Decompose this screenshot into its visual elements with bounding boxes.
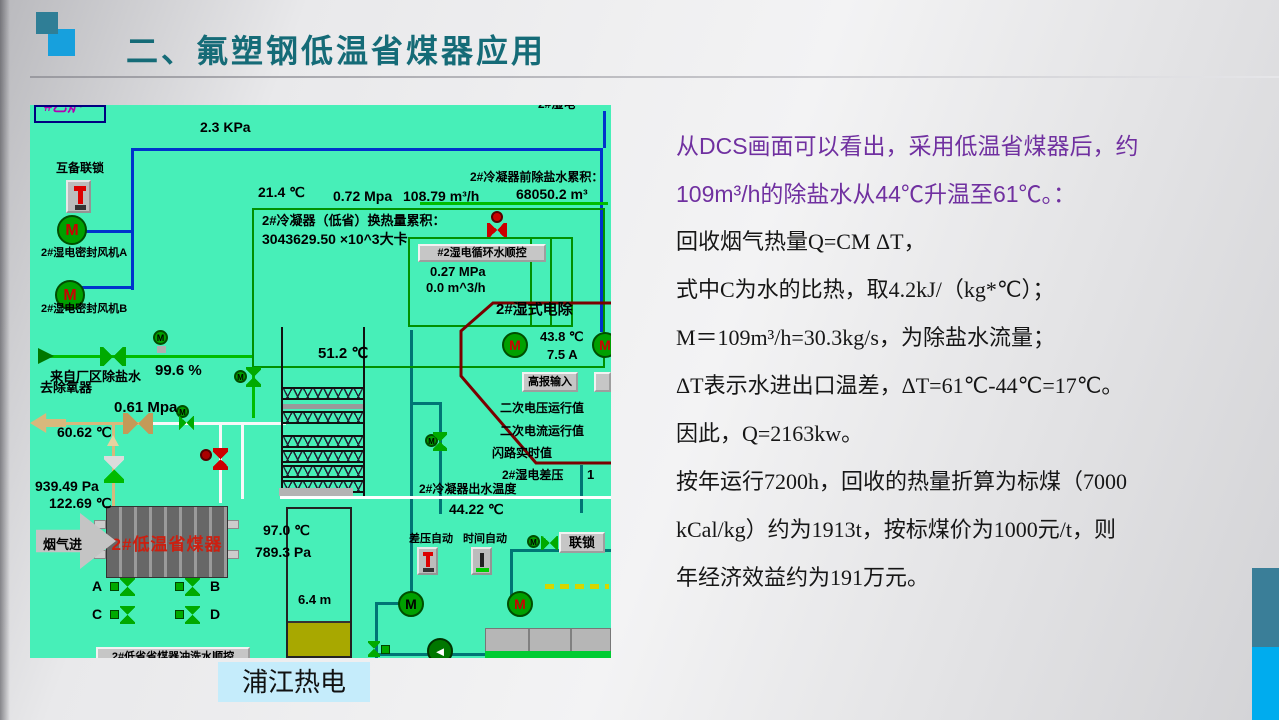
- temp-value: 97.0 ℃: [263, 523, 310, 538]
- body-text: 从DCS画面可以看出，采用低温省煤器后，约 109m³/h的除盐水从44℃升温至…: [676, 122, 1261, 602]
- pipe-blue: [86, 230, 131, 233]
- duct-divider: [570, 629, 572, 651]
- valve-icon[interactable]: [104, 456, 124, 483]
- valve-icon[interactable]: [185, 606, 200, 624]
- pump-icon[interactable]: ◄: [427, 638, 453, 658]
- wesp-motor-icon[interactable]: M: [502, 332, 528, 358]
- pipe-blue: [603, 111, 606, 148]
- separator-line: [280, 496, 611, 499]
- pressure-value: 0.72 Mpa: [333, 189, 392, 204]
- pump-motor-icon[interactable]: M: [507, 591, 533, 617]
- valve-icon[interactable]: [487, 223, 507, 237]
- boiler-tag-box: #乙炉: [34, 105, 106, 123]
- valve-icon[interactable]: [179, 416, 194, 430]
- interlock-switch[interactable]: [66, 180, 91, 213]
- temp-value: 122.69 ℃: [49, 496, 111, 511]
- secondary-voltage-label: 二次电压运行值: [500, 402, 584, 415]
- fan-a-label: 2#湿电密封风机A: [41, 247, 127, 259]
- outlet-temp-value: 44.22 ℃: [449, 502, 504, 517]
- presentation-slide: 二、氟塑钢低温省煤器应用 #乙炉: [0, 0, 1279, 720]
- body-line: M＝109m³/h=30.3kg/s，为除盐水流量；: [676, 314, 1261, 362]
- body-line: 回收烟气热量Q=CM ΔT，: [676, 218, 1261, 266]
- fan-motor-icon[interactable]: M: [57, 215, 87, 245]
- valve-letter: D: [210, 607, 220, 622]
- dp-auto-switch[interactable]: [417, 547, 438, 575]
- time-auto-switch[interactable]: [471, 547, 492, 575]
- motor-valve-icon[interactable]: M: [153, 330, 168, 345]
- pipe-teal: [410, 330, 413, 610]
- pipe-white: [146, 422, 286, 425]
- valve-icon[interactable]: [175, 610, 184, 619]
- slide-edge-shadow: [0, 0, 10, 720]
- switch-rod: [78, 190, 83, 204]
- pressure-value: 0.61 Mpa: [114, 400, 177, 417]
- pipe-blue: [131, 148, 134, 290]
- tube-bundle-row: [283, 435, 363, 448]
- tank-level-value: 6.4 m: [298, 593, 331, 607]
- to-deaerator-label: 去除氧器: [40, 381, 92, 395]
- valve-icon[interactable]: [110, 610, 119, 619]
- pressure-value: 0.27 MPa: [430, 265, 486, 279]
- pressure-value: 2.3 KPa: [200, 120, 251, 135]
- clipped-top-label: 2#湿电: [538, 105, 608, 112]
- switch-base: [423, 568, 434, 572]
- pipe-teal: [580, 465, 583, 513]
- outlet-temp-label: 2#冷凝器出水温度: [419, 483, 516, 496]
- pressure-value: 789.3 Pa: [255, 545, 311, 560]
- body-line: 因此，Q=2163kw。: [676, 410, 1261, 458]
- interlock-label: 互备联锁: [56, 162, 104, 175]
- current-value: 7.5 A: [547, 348, 578, 362]
- pressure-value: 939.49 Pa: [35, 479, 99, 494]
- pipe-water: [38, 355, 254, 358]
- valve-icon[interactable]: [185, 578, 200, 596]
- valve-icon[interactable]: [120, 578, 135, 596]
- switch-base: [75, 205, 86, 210]
- valve-letter: A: [92, 579, 102, 594]
- green-strip: [485, 651, 611, 658]
- pipe-blue: [131, 148, 603, 151]
- pipe-blue: [80, 286, 131, 289]
- valve-icon[interactable]: [120, 606, 135, 624]
- pipe-white: [241, 425, 244, 499]
- duct-divider: [528, 629, 530, 651]
- time-auto-label: 时间自动: [463, 533, 507, 545]
- body-line: 109m³/h的除盐水从44℃升温至61℃。：: [676, 170, 1261, 218]
- flashover-label: 闪路实时值: [492, 447, 552, 460]
- valve-icon[interactable]: [368, 641, 380, 657]
- temp-value: 51.2 ℃: [318, 346, 368, 363]
- tube-bundle-row: [283, 411, 363, 424]
- valve-letter: B: [210, 579, 220, 594]
- flue-gas-label: 烟气进: [43, 534, 82, 553]
- wesp-title: 2#湿式电除: [496, 302, 609, 319]
- valve-letter: C: [92, 607, 102, 622]
- valve-icon[interactable]: [100, 347, 126, 366]
- valve-icon[interactable]: [541, 536, 558, 550]
- header-divider: [30, 76, 1279, 78]
- wesp-motor-icon[interactable]: M: [592, 332, 611, 358]
- economizer-stub: [227, 520, 239, 529]
- valve-icon[interactable]: [175, 582, 184, 591]
- economizer-block: 2#低温省煤器: [106, 506, 228, 578]
- yellow-dashed-line: [545, 584, 609, 589]
- body-line: ΔT表示水进出口温差，ΔT=61℃-44℃=17℃。: [676, 362, 1261, 410]
- body-line: 按年运行7200h，回收的热量折算为标煤（7000: [676, 458, 1261, 506]
- valve-icon[interactable]: [110, 582, 119, 591]
- economizer-stub: [227, 550, 239, 559]
- valve-icon[interactable]: [381, 645, 390, 654]
- clipped-button[interactable]: [594, 372, 611, 392]
- pipe-teal: [410, 402, 442, 405]
- flush-sequence-button[interactable]: 2#低省省煤器冲洗水顺控: [96, 647, 250, 658]
- pump-motor-icon[interactable]: M: [398, 591, 424, 617]
- clipped-top-text: 2#湿电: [538, 105, 608, 111]
- pipe-teal: [510, 552, 513, 596]
- tube-bundle-row: [283, 450, 363, 463]
- tube-bundle-row: [283, 465, 363, 478]
- edge-bar-teal: [1252, 568, 1279, 647]
- inlet-arrow-icon: [38, 348, 54, 364]
- dcs-screenshot: #乙炉 6.4 m: [30, 105, 611, 658]
- edge-bar-blue: [1252, 647, 1279, 720]
- flow-value: 108.79 m³/h: [403, 189, 479, 204]
- tank-level-fill: [288, 621, 350, 656]
- decorative-square-teal: [36, 12, 58, 34]
- body-line: 年经济效益约为191万元。: [676, 554, 1261, 602]
- accum-water-label: 2#冷凝器前除盐水累积：: [470, 171, 603, 184]
- fan-b-label: 2#湿电密封风机B: [41, 303, 127, 315]
- temp-value: 43.8 ℃: [540, 330, 584, 344]
- tube-band: [283, 404, 363, 409]
- switch-rod: [480, 553, 484, 567]
- switch-rod: [426, 555, 430, 567]
- valve-icon[interactable]: [213, 448, 228, 470]
- wesp-dp-label: 2#湿电差压: [502, 469, 563, 482]
- secondary-current-label: 二次电流运行值: [500, 425, 584, 438]
- valve-opening-value: 99.6 %: [155, 363, 202, 380]
- body-line: 式中C为水的比热，取4.2kJ/（kg*℃）；: [676, 266, 1261, 314]
- motor-valve-icon[interactable]: M: [527, 535, 540, 548]
- accum-water-value: 68050.2 m³: [516, 187, 588, 202]
- valve-seat: [157, 346, 166, 353]
- wesp-dp-value: 1: [587, 468, 594, 482]
- valve-icon[interactable]: [246, 367, 261, 387]
- image-caption: 浦江热电: [218, 662, 370, 702]
- valve-actuator-icon: [200, 449, 212, 461]
- duct-structure: [485, 628, 611, 652]
- circulation-sequence-button[interactable]: #2湿电循环水顺控: [418, 244, 546, 262]
- temp-value: 60.62 ℃: [57, 425, 112, 440]
- body-line: kCal/kg）约为1913t，按标煤价为1000元/t，则: [676, 506, 1261, 554]
- switch-base: [476, 568, 489, 572]
- valve-icon[interactable]: [433, 432, 447, 451]
- heat-accum-label: 2#冷凝器（低省）换热量累积：: [262, 214, 445, 228]
- alarm-input-button[interactable]: 高报输入: [522, 372, 578, 392]
- page-title: 二、氟塑钢低温省煤器应用: [126, 26, 546, 72]
- heat-accum-value: 3043629.50 ×10^3大卡: [262, 232, 408, 247]
- tank-top-band: [279, 488, 353, 496]
- interlock-button[interactable]: 联锁: [559, 532, 605, 553]
- body-line: 从DCS画面可以看出，采用低温省煤器后，约: [676, 122, 1261, 170]
- temp-value: 21.4 ℃: [258, 185, 305, 200]
- boiler-tag-label: #乙炉: [44, 105, 82, 116]
- flow-value: 0.0 m^3/h: [426, 281, 486, 295]
- economizer-label: 2#低温省煤器: [112, 530, 223, 555]
- valve-actuator-icon: [491, 211, 503, 223]
- dp-auto-label: 差压自动: [409, 533, 453, 545]
- tube-bundle-row: [283, 387, 363, 400]
